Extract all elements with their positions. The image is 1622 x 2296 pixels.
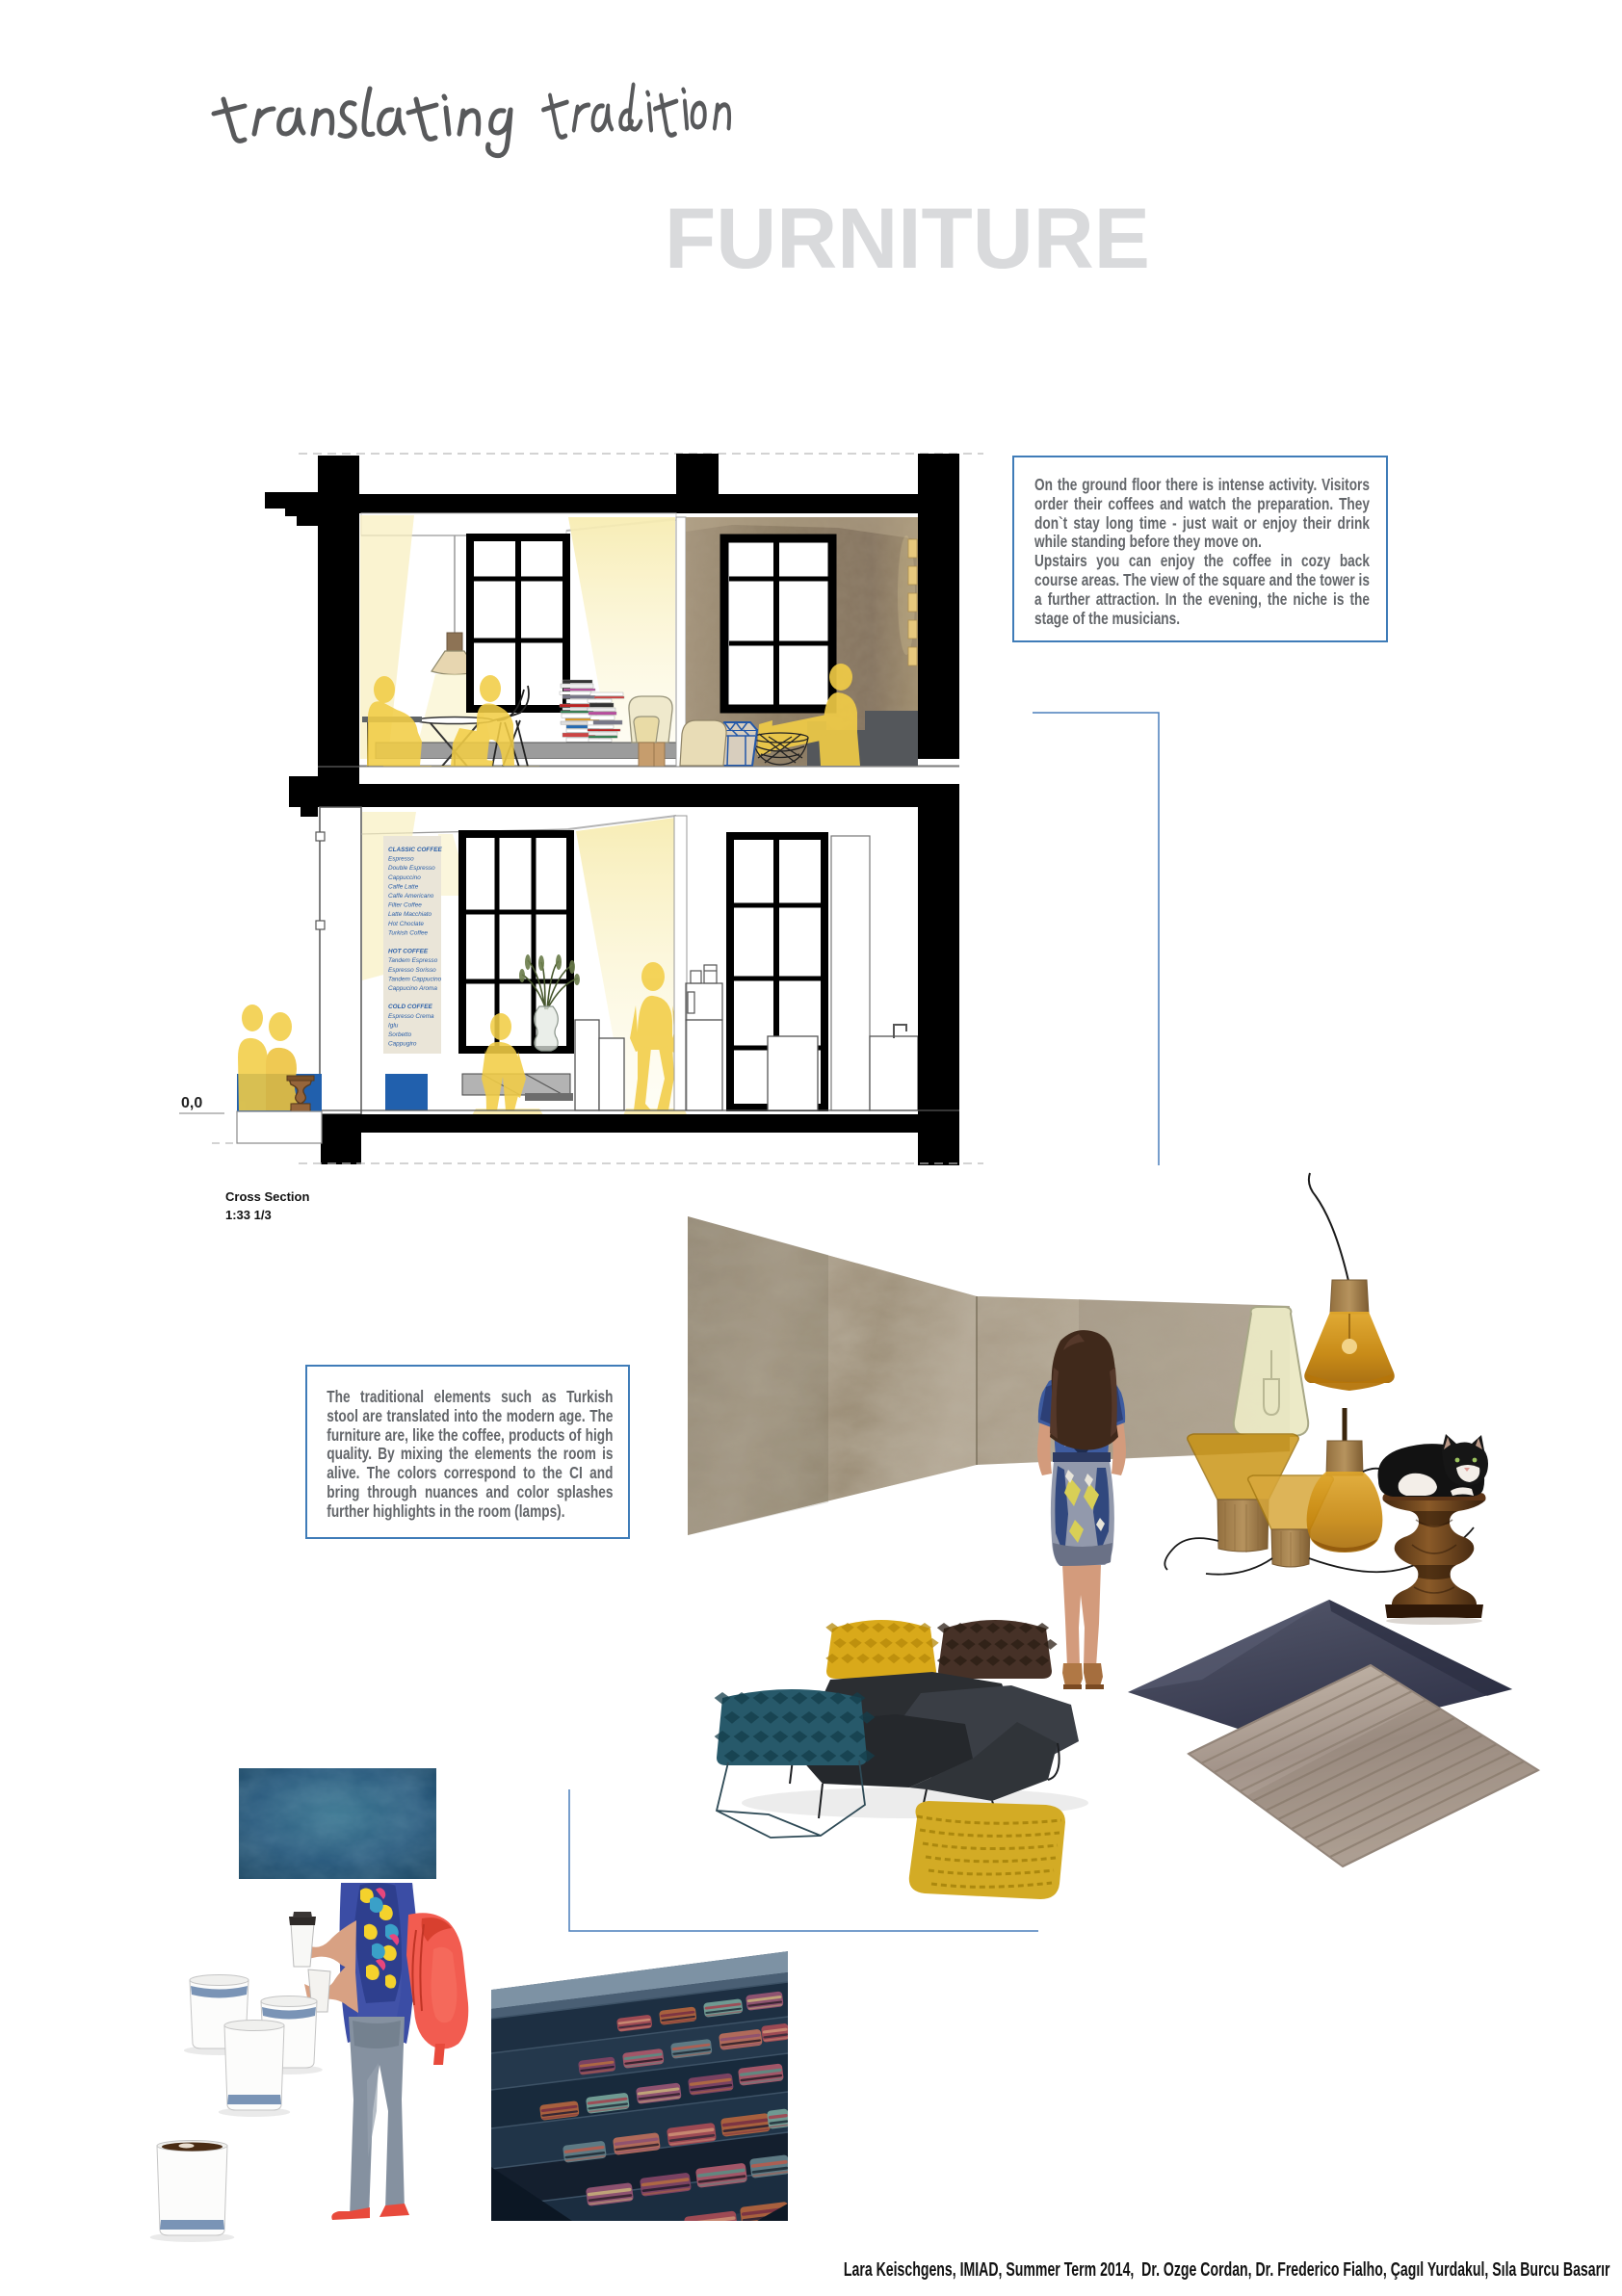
svg-text:CLASSIC COFFEE: CLASSIC COFFEE [388, 847, 442, 853]
svg-text:Caffe Americano: Caffe Americano [388, 893, 434, 900]
svg-text:Iglu: Iglu [388, 1022, 399, 1029]
svg-text:Turkish Coffee: Turkish Coffee [388, 929, 429, 936]
svg-text:Tandem Cappucino: Tandem Cappucino [388, 976, 442, 982]
svg-text:Cappucino Aroma: Cappucino Aroma [388, 985, 437, 992]
svg-text:Filter Coffee: Filter Coffee [388, 902, 422, 909]
svg-text:Double Espresso: Double Espresso [388, 865, 435, 872]
svg-text:Tandem Espresso: Tandem Espresso [388, 957, 438, 964]
svg-text:Espresso Crema: Espresso Crema [388, 1013, 434, 1020]
svg-text:Caffe Latte: Caffe Latte [388, 883, 419, 890]
svg-text:Hot Choclate: Hot Choclate [388, 921, 424, 927]
svg-text:Cappugiro: Cappugiro [388, 1041, 417, 1048]
svg-text:COLD COFFEE: COLD COFFEE [388, 1004, 433, 1010]
svg-text:Cappuccino: Cappuccino [388, 874, 421, 881]
svg-text:Sorbetto: Sorbetto [388, 1031, 412, 1038]
svg-text:Latte Macchiato: Latte Macchiato [388, 911, 432, 918]
svg-text:0,0: 0,0 [181, 1095, 202, 1111]
svg-text:HOT COFFEE: HOT COFFEE [388, 949, 429, 955]
svg-text:Espresso Sorisso: Espresso Sorisso [388, 967, 436, 974]
svg-text:Cross Section: Cross Section [225, 1189, 309, 1204]
svg-text:Espresso: Espresso [388, 856, 414, 863]
svg-text:1:33 1/3: 1:33 1/3 [225, 1208, 272, 1222]
